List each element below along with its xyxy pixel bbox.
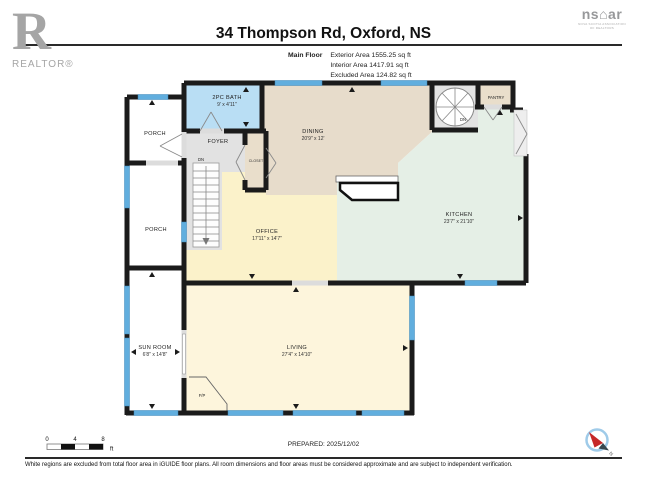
label-kitchen: KITCHEN [446,212,473,218]
window [362,411,404,416]
label-fireplace: F/P [199,393,206,398]
label-closet: CLOSET [249,159,264,163]
window [125,166,130,208]
staircase-spiral [432,85,478,130]
window [293,411,356,416]
disclaimer-text: White regions are excluded from total fl… [25,462,625,468]
window [138,95,168,100]
window [381,81,427,86]
label-pantry: PANTRY [488,95,505,100]
label-sunroom: SUN ROOM [138,345,171,351]
window [125,286,130,334]
door-porch-porch [146,161,178,166]
room-porch-top [127,97,184,163]
label-living: LIVING [287,345,307,351]
staircase-straight [193,163,219,247]
label-porch-left: PORCH [145,227,167,233]
window [228,411,283,416]
patio-door-panel [183,334,186,374]
window [134,411,178,416]
door-kitchen-exterior [514,110,527,156]
label-foyer: FOYER [208,139,229,145]
label-office: OFFICE [256,229,278,235]
door-bath [200,129,224,134]
window [125,338,130,406]
label-porch-top: PORCH [144,131,166,137]
label-sunroom-dims: 6'8" x 14'8" [143,352,168,358]
label-kitchen-dims: 23'7" x 21'10" [444,219,474,225]
label-bath-dims: 9' x 4'11" [217,102,237,108]
floorplan-drawing: 2PC BATH 9' x 4'11" FOYER CLOSET DINING … [0,0,647,500]
window [182,222,187,242]
label-bath: 2PC BATH [212,95,241,101]
label-dining-dims: 20'9" x 12' [302,136,325,142]
door-pantry [484,105,502,110]
door-foyer-porch [182,132,187,158]
prepared-date: PREPARED: 2025/12/02 [0,441,647,448]
label-dn-stairs: DN [198,157,204,162]
label-dining: DINING [302,129,323,135]
floorplan-page: R REALTOR® 34 Thompson Rd, Oxford, NS Ma… [0,0,647,500]
window [410,296,415,340]
door-office-living [292,281,328,286]
room-porch-left [127,163,184,268]
room-sunroom [127,268,185,413]
window [465,281,497,286]
window [275,81,322,86]
label-office-dims: 17'11" x 14'7" [252,236,282,242]
label-living-dims: 27'4" x 14'10" [282,352,312,358]
footer-divider [25,457,622,459]
label-dn-spiral: DN [460,117,466,122]
